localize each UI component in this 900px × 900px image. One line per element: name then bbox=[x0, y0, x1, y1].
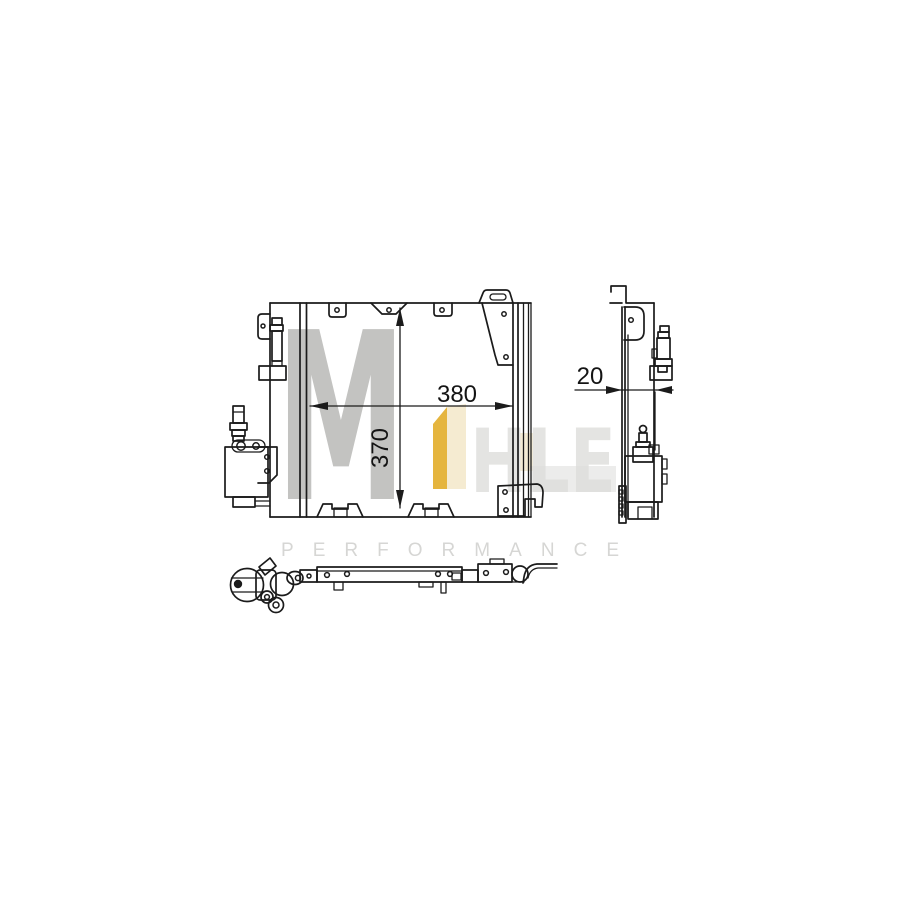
technical-drawing-canvas: M HLE PERFORMANCE bbox=[0, 0, 900, 900]
height-dimension-label: 370 bbox=[367, 428, 394, 468]
bottom-left-fitting-cluster bbox=[231, 558, 304, 613]
bottom-right-bracket-hook bbox=[452, 559, 557, 583]
bottom-view-drawing bbox=[231, 558, 558, 613]
condenser-technical-drawing-page: M HLE PERFORMANCE bbox=[0, 0, 900, 900]
watermark-brand-logo: M HLE PERFORMANCE bbox=[276, 283, 619, 561]
depth-dimension-label: 20 bbox=[577, 363, 604, 390]
watermark-letter-m: M bbox=[276, 283, 406, 554]
watermark-accent-wedge-gold bbox=[433, 407, 447, 489]
top-right-bracket bbox=[479, 290, 513, 365]
watermark-accent-wedge-cream bbox=[447, 404, 466, 489]
width-dimension-label: 380 bbox=[437, 381, 477, 408]
bottom-cross-rail bbox=[300, 567, 462, 593]
side-receiver-drier bbox=[619, 426, 667, 524]
